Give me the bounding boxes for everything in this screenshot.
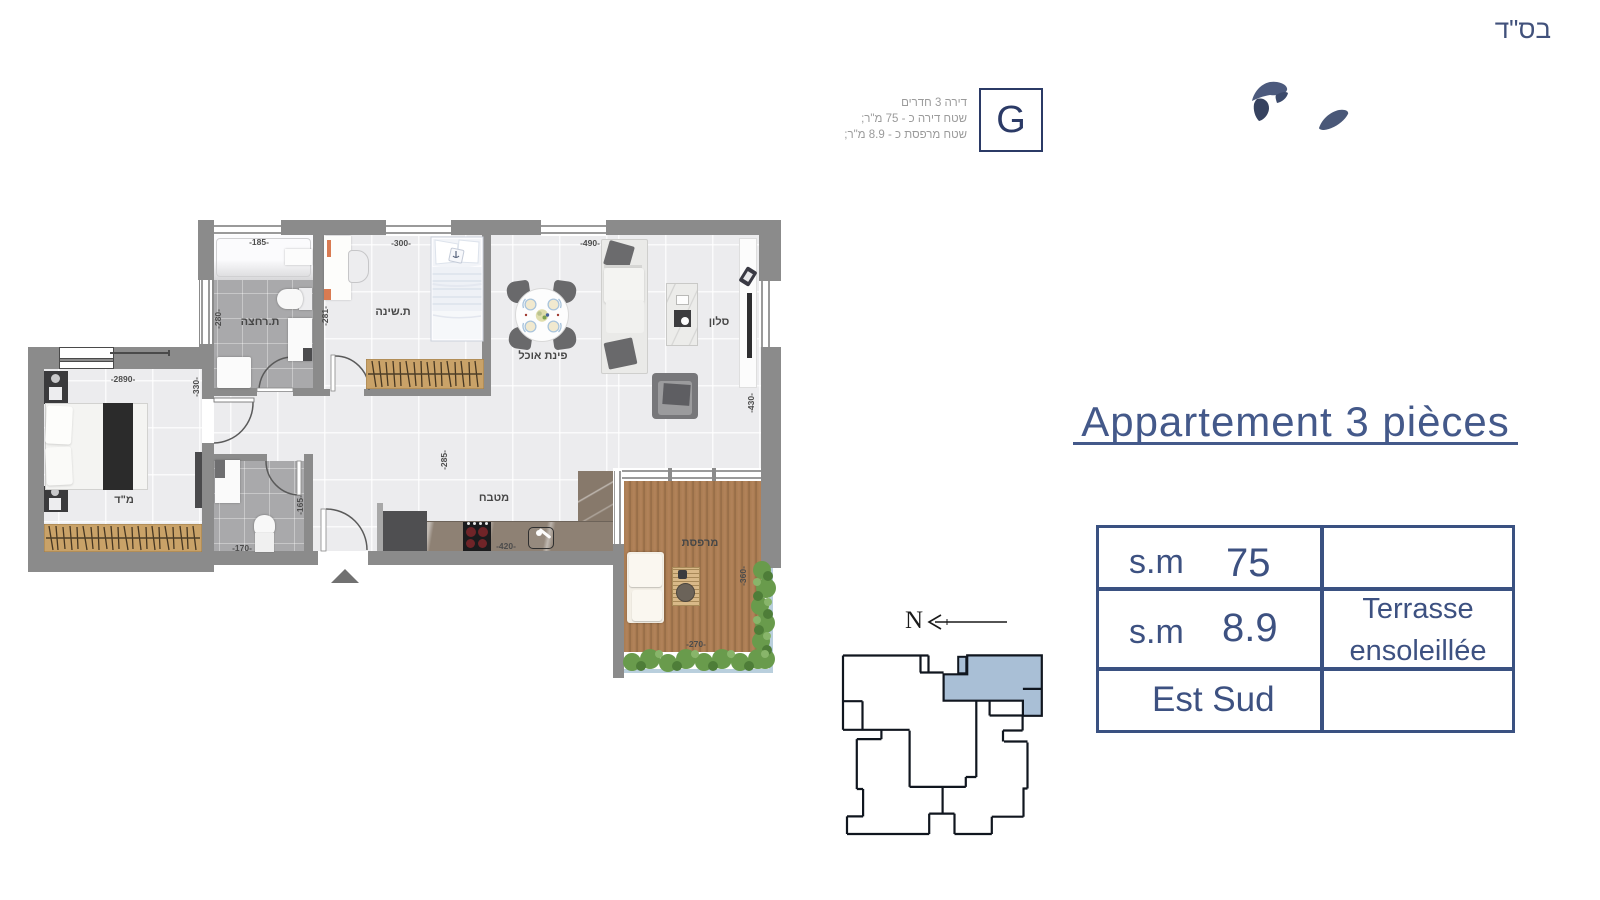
svg-text:N: N [905,607,923,634]
